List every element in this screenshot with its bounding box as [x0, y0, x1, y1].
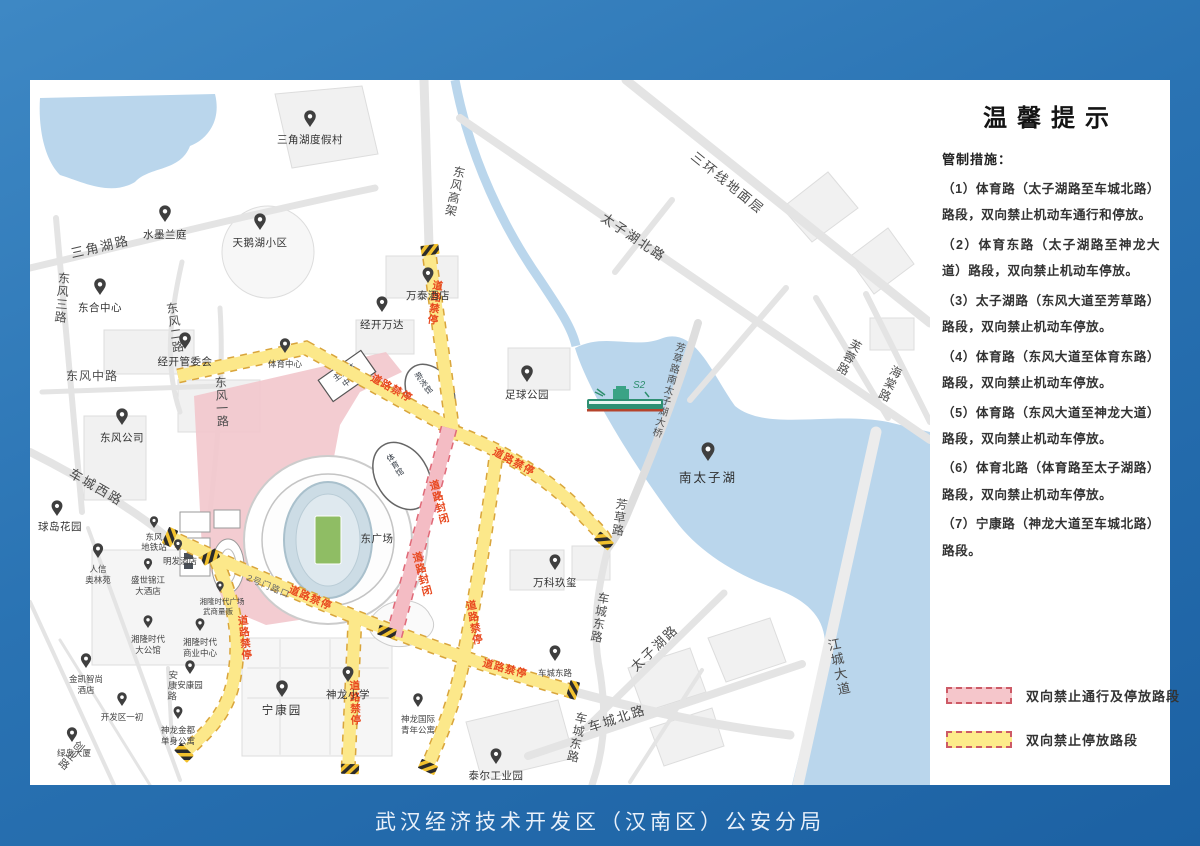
poi-jingkai-guanweihui: 经开管委会: [158, 355, 213, 368]
poi-ningkang-garden: 宁康园: [262, 703, 303, 717]
poi-football-park: 足球公园: [505, 388, 549, 401]
poi-renxin-2: 奥林苑: [85, 575, 111, 585]
legend: 双向禁止通行及停放路段 双向禁止停放路段: [946, 686, 1162, 774]
poi-nan-taizihu: 南太子湖: [679, 470, 737, 485]
poi-xl-biz-1: 湘隆时代: [183, 637, 218, 647]
control-item-1: （1）体育路（太子湖路至车城北路）路段，双向禁止机动车通行和停放。: [942, 176, 1160, 229]
road-label-dongfeng-gaojia: 东风高架: [442, 164, 467, 218]
road-barrier-icon: [341, 764, 359, 775]
poi-sl-apt-2: 单身公寓: [161, 736, 195, 746]
poi-xl-biz-2: 商业中心: [183, 648, 218, 658]
road-label-checheng-east: 车城东路: [588, 589, 611, 644]
poi-wanke-jiuxi: 万科玖玺: [533, 576, 577, 589]
legend-label-no-parking: 双向禁止停放路段: [1026, 730, 1138, 749]
poi-taier-park: 泰尔工业园: [469, 769, 524, 782]
poi-shenlong-primary: 神龙小学: [326, 688, 370, 701]
road-label-sanjiaohu: 三角湖路: [69, 233, 131, 261]
poi-lvdao: 绿岛大厦: [57, 748, 92, 758]
poi-metro-2: 地铁站: [141, 542, 167, 552]
poi-mingfa-hotel: 明发酒店: [163, 556, 198, 566]
poi-sl-apt-1: 神龙金都: [161, 725, 196, 735]
poi-xl-mansion-1: 湘隆时代: [131, 634, 166, 644]
road-label-haitang: 海棠路: [875, 362, 905, 405]
map-card: 体育馆 游泳馆 主媒体 中心 东广场: [30, 80, 1170, 785]
road-label-dongfeng3: 东风三路: [52, 271, 71, 324]
football-pitch: [315, 516, 341, 564]
poi-sports-center: 体育中心: [268, 359, 303, 369]
poi-ankang-garden: 安康园: [177, 680, 203, 690]
legend-swatch-no-through: [946, 687, 1012, 704]
poi-sanjiaohu-resort: 三角湖度假村: [277, 133, 343, 146]
poi-tianehu: 天鹅湖小区: [233, 236, 288, 249]
road-label-dongfeng-mid: 东风中路: [66, 368, 118, 383]
ship-label: S2: [633, 380, 646, 391]
poi-xl-mansion-2: 大公馆: [135, 645, 161, 655]
road-label-dongfeng1: 东风一路: [213, 375, 230, 428]
panel-title: 温馨提示: [942, 98, 1160, 133]
poi-shenlong-intl-2: 青年公寓: [401, 725, 435, 735]
poi-shengshi-2: 大酒店: [135, 586, 161, 596]
footer-text: 武汉经济技术开发区（汉南区）公安分局: [0, 806, 1200, 836]
poi-shuimo-lanting: 水墨兰庭: [143, 228, 187, 241]
control-item-6: （6）体育北路（体育路至太子湖路）路段，双向禁止机动车停放。: [942, 455, 1160, 508]
poi-jinkai-1: 金凯智尚: [69, 674, 103, 684]
legend-row-no-parking: 双向禁止停放路段: [946, 730, 1162, 749]
control-item-3: （3）太子湖路（东风大道至芳草路）路段，双向禁止机动车停放。: [942, 288, 1160, 341]
control-item-5: （5）体育路（东风大道至神龙大道）路段，双向禁止机动车停放。: [942, 400, 1160, 453]
poi-checheng-east-station: 车城东路: [538, 668, 573, 678]
poi-metro-1: 东风: [145, 532, 163, 542]
control-item-2: （2）体育东路（太子湖路至神龙大道）路段，双向禁止机动车停放。: [942, 232, 1160, 285]
no-parking-label: 道路禁停: [348, 679, 362, 726]
legend-swatch-no-parking: [946, 731, 1012, 748]
control-item-4: （4）体育路（东风大道至体育东路）路段，双向禁止机动车停放。: [942, 344, 1160, 397]
poi-dongfeng-company: 东风公司: [100, 431, 144, 444]
east-plaza-label: 东广场: [361, 532, 394, 545]
poi-qiudao-garden: 球岛花园: [38, 520, 82, 533]
poi-kaifaqu-yichu: 开发区一初: [101, 712, 144, 722]
poi-shengshi-1: 盛世锦江: [131, 575, 166, 585]
poi-wantai-hotel: 万泰酒店: [406, 289, 450, 302]
notice-panel: 温馨提示 管制措施： （1）体育路（太子湖路至车城北路）路段，双向禁止机动车通行…: [930, 80, 1170, 785]
legend-row-no-through: 双向禁止通行及停放路段: [946, 686, 1162, 705]
notice-page: 体育馆 游泳馆 主媒体 中心 东广场: [0, 0, 1200, 846]
poi-jingkai-wanda: 经开万达: [360, 318, 404, 331]
map-svg: 体育馆 游泳馆 主媒体 中心 东广场: [30, 80, 930, 785]
poi-jinkai-2: 酒店: [77, 685, 95, 695]
poi-shenlong-intl-1: 神龙国际: [401, 714, 436, 724]
poi-xianglong-plaza: 湘隆时代广场: [200, 596, 245, 606]
poi-donghe-center: 东合中心: [78, 301, 122, 314]
poi-renxin-1: 人信: [89, 564, 107, 574]
panel-intro: 管制措施：: [942, 149, 1160, 168]
control-item-7: （7）宁康路（神龙大道至车城北路）路段。: [942, 511, 1160, 564]
legend-label-no-through: 双向禁止通行及停放路段: [1026, 686, 1180, 705]
traffic-control-map: 体育馆 游泳馆 主媒体 中心 东广场: [30, 80, 930, 785]
road-label-fangcao: 芳草路: [610, 497, 629, 538]
poi-wushang: 武商量贩: [203, 606, 233, 616]
